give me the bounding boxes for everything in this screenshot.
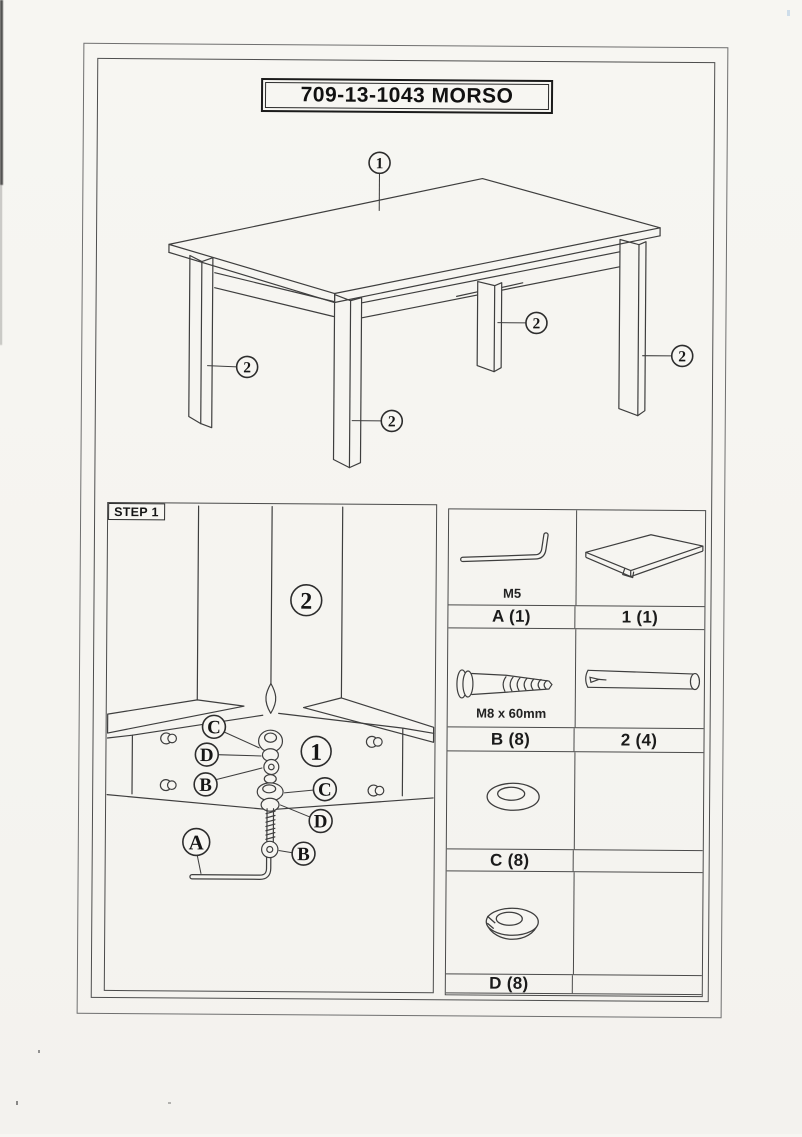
- scanned-instruction-sheet: 709-13-1043 MORSO: [0, 0, 802, 1137]
- step1-diagram: 2 1 C D B C D B A: [105, 503, 436, 992]
- part-spec: M8 x 60mm: [448, 705, 575, 721]
- page-title: 709-13-1043 MORSO: [301, 83, 514, 108]
- title-box-inner-frame: 709-13-1043 MORSO: [265, 82, 549, 110]
- part-code: B (8): [491, 729, 530, 749]
- part-cell-tabletop: [576, 510, 706, 606]
- part-cell-lock-washer: [446, 871, 575, 974]
- parts-row-labels: C (8): [447, 848, 703, 873]
- parts-row-labels: A (1) 1 (1): [448, 604, 704, 630]
- step1-lock-washer-letter: D: [200, 745, 214, 766]
- tabletop-shape: [169, 176, 661, 304]
- step1-lock-washer-letter: D: [314, 811, 328, 832]
- step1-leg-number: 2: [300, 589, 312, 615]
- leg-dowel-tip: [266, 683, 276, 713]
- table-leg-back-left: [189, 256, 213, 428]
- callout-number-tabletop: 1: [376, 155, 384, 172]
- part-cell-empty: [575, 752, 704, 850]
- table-leg-right: [619, 240, 646, 416]
- part-code: 2 (4): [621, 730, 658, 750]
- part-spec: M5: [449, 585, 576, 601]
- step1-bracket-number: 1: [310, 740, 322, 766]
- step1-callouts: 2 1 C D B C D B A: [183, 584, 338, 875]
- step1-washer-letter: C: [318, 780, 332, 801]
- lower-bolt-head: [262, 841, 278, 857]
- parts-row-images: [446, 871, 703, 975]
- lock-washer-icon: [446, 871, 574, 974]
- parts-row-images: M8 x 60mm: [448, 628, 705, 728]
- allen-key-tool: [192, 856, 269, 877]
- leg-icon: [576, 629, 707, 728]
- parts-table: M5 A (1) 1 (1): [445, 508, 706, 997]
- callout-number-leg: 2: [243, 359, 251, 376]
- flat-washer-icon: [447, 751, 575, 849]
- parts-row-labels: B (8) 2 (4): [447, 726, 703, 753]
- part-cell-empty: [574, 872, 703, 975]
- title-box: 709-13-1043 MORSO: [261, 78, 553, 114]
- part-cell-allen-key: M5: [448, 509, 577, 605]
- part-cell-flat-washer: [447, 751, 576, 849]
- part-cell-leg: [576, 629, 707, 728]
- part-code: C (8): [490, 850, 529, 870]
- upper-bolt-assembly: [258, 730, 282, 783]
- part-code: D (8): [489, 974, 528, 994]
- table-leg-front: [333, 295, 361, 468]
- part-code: A (1): [492, 607, 531, 627]
- callout-number-leg: 2: [678, 348, 686, 365]
- callout-number-leg: 2: [388, 413, 396, 430]
- part-code: 1 (1): [622, 608, 659, 628]
- parts-row-images: M5: [448, 509, 705, 606]
- step1-bolt-letter: B: [199, 775, 212, 796]
- step1-section: 2 1 C D B C D B A: [104, 502, 437, 993]
- tabletop-icon: [576, 510, 706, 606]
- parts-row-images: [447, 751, 704, 850]
- callout-number-leg: 2: [533, 315, 541, 332]
- lower-bolt-assembly: [257, 783, 283, 843]
- part-cell-bolt: M8 x 60mm: [448, 628, 577, 727]
- step1-washer-letter: C: [207, 717, 221, 738]
- parts-row-labels: D (8): [446, 973, 702, 995]
- step1-allen-key-letter: A: [189, 830, 204, 854]
- step1-heading: STEP 1: [108, 503, 165, 520]
- table-overview-diagram: 1 2 2 2 2: [100, 143, 714, 492]
- table-leg-back-right: [477, 282, 502, 372]
- step1-bolt-letter: B: [297, 844, 310, 865]
